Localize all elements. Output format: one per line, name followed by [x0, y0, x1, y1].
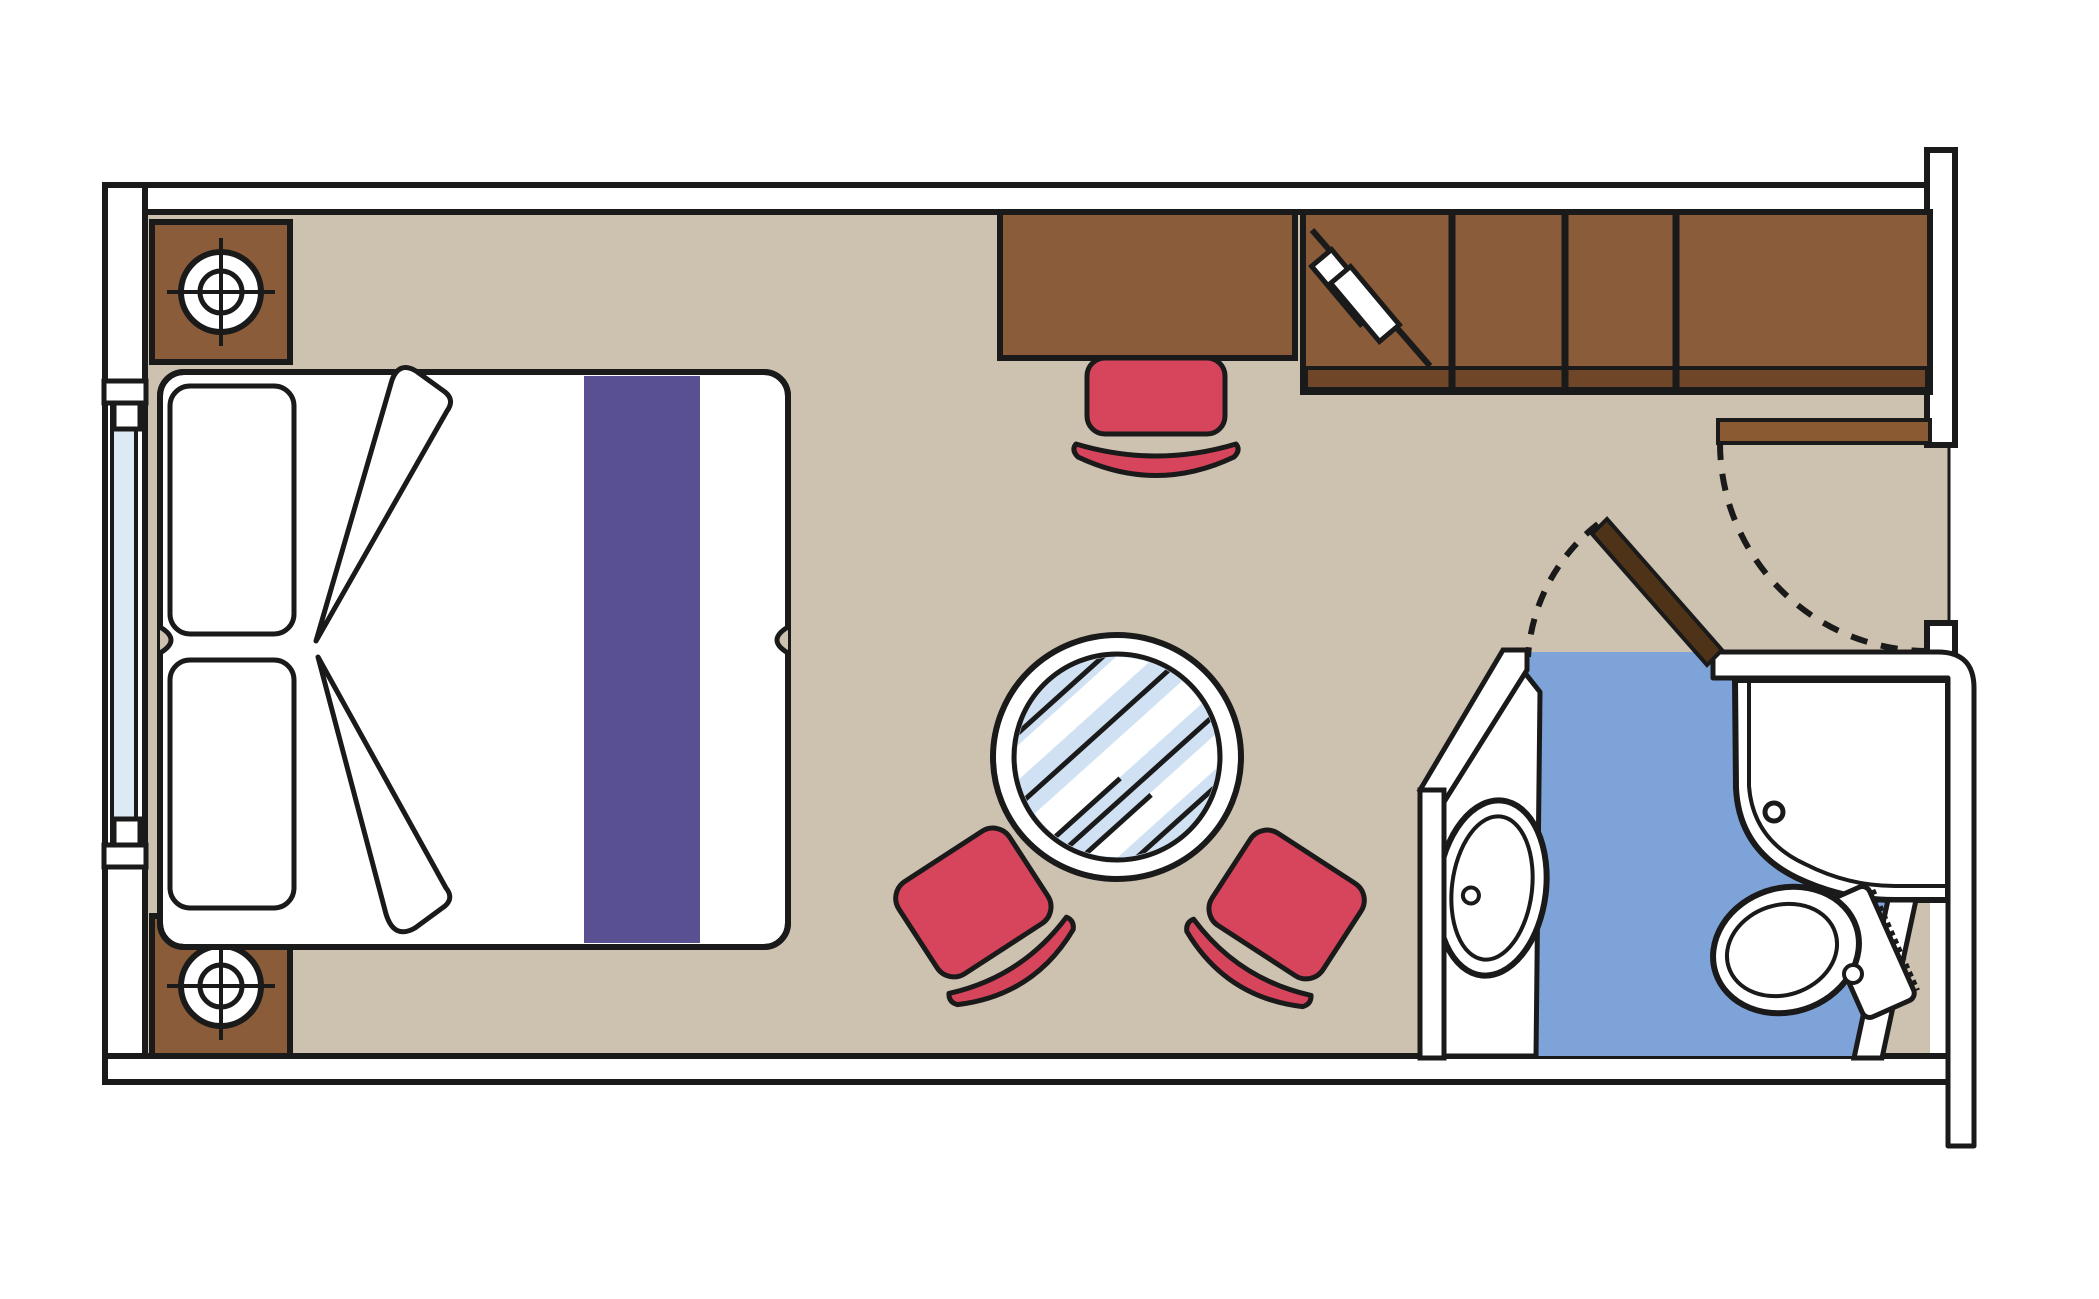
faucet-dot — [1462, 887, 1480, 905]
bed-runner — [584, 376, 700, 943]
flush-button — [1844, 965, 1862, 983]
wardrobe-shelf-strip — [1306, 368, 1927, 389]
nightstand-top — [152, 222, 290, 362]
entrance-door-leaf — [1718, 420, 1930, 443]
wall-bottom — [105, 1056, 1952, 1082]
window-handle-top — [114, 403, 140, 429]
bathroom-left-wall — [1420, 790, 1444, 1058]
wardrobe-cabinet — [1303, 212, 1930, 392]
floorplan-page — [0, 0, 2099, 1299]
shower-drain — [1765, 803, 1783, 821]
wall-top — [105, 185, 1933, 212]
window-glass — [112, 401, 136, 847]
window-frame-top-cap — [104, 381, 146, 403]
wardrobe — [1303, 212, 1930, 392]
pillow-top — [170, 386, 294, 634]
double-bed — [160, 368, 788, 947]
pillow-bottom — [170, 660, 294, 908]
window-handle-bottom — [114, 819, 140, 845]
desk-chair — [1074, 358, 1238, 476]
floorplan-svg — [0, 0, 2099, 1299]
window-frame-bottom-cap — [104, 845, 146, 867]
desk — [1000, 212, 1295, 358]
